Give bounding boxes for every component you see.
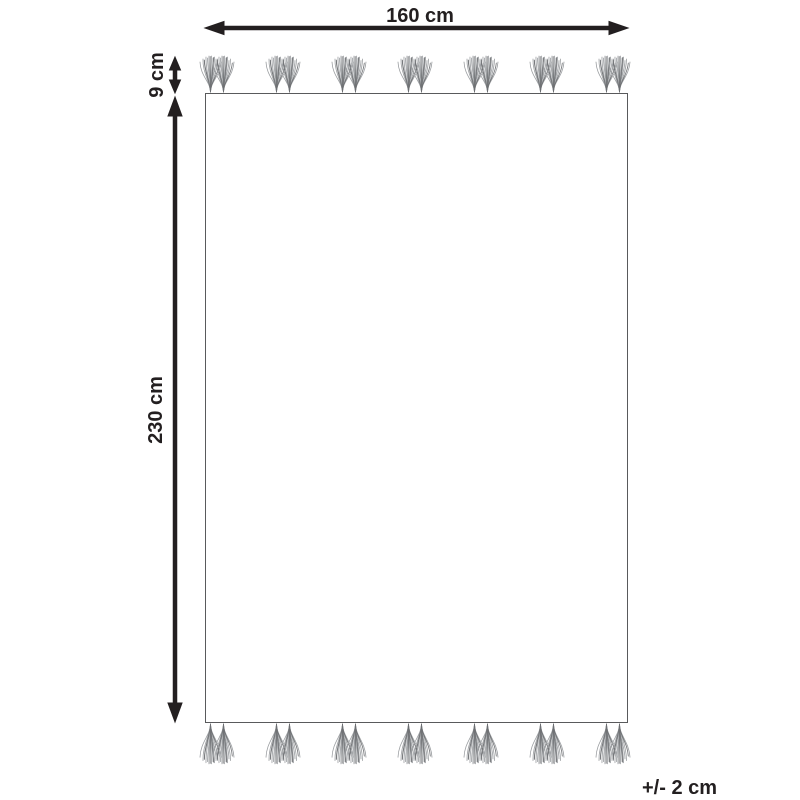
- tolerance-label: +/- 2 cm: [642, 778, 717, 798]
- height-label: 230 cm: [146, 376, 166, 444]
- tassel-length-dimension-arrow: [168, 57, 182, 93]
- tassel-length-label: 9 cm: [147, 52, 167, 98]
- rug-outline: [205, 93, 628, 723]
- bottom-tassel-fringe: [205, 722, 628, 766]
- top-tassel-fringe: [205, 54, 628, 94]
- dimension-diagram: 160 cm 9 cm 230 cm +/-: [0, 0, 800, 800]
- height-dimension-arrow: [168, 97, 182, 722]
- width-dimension-arrow: [205, 21, 628, 35]
